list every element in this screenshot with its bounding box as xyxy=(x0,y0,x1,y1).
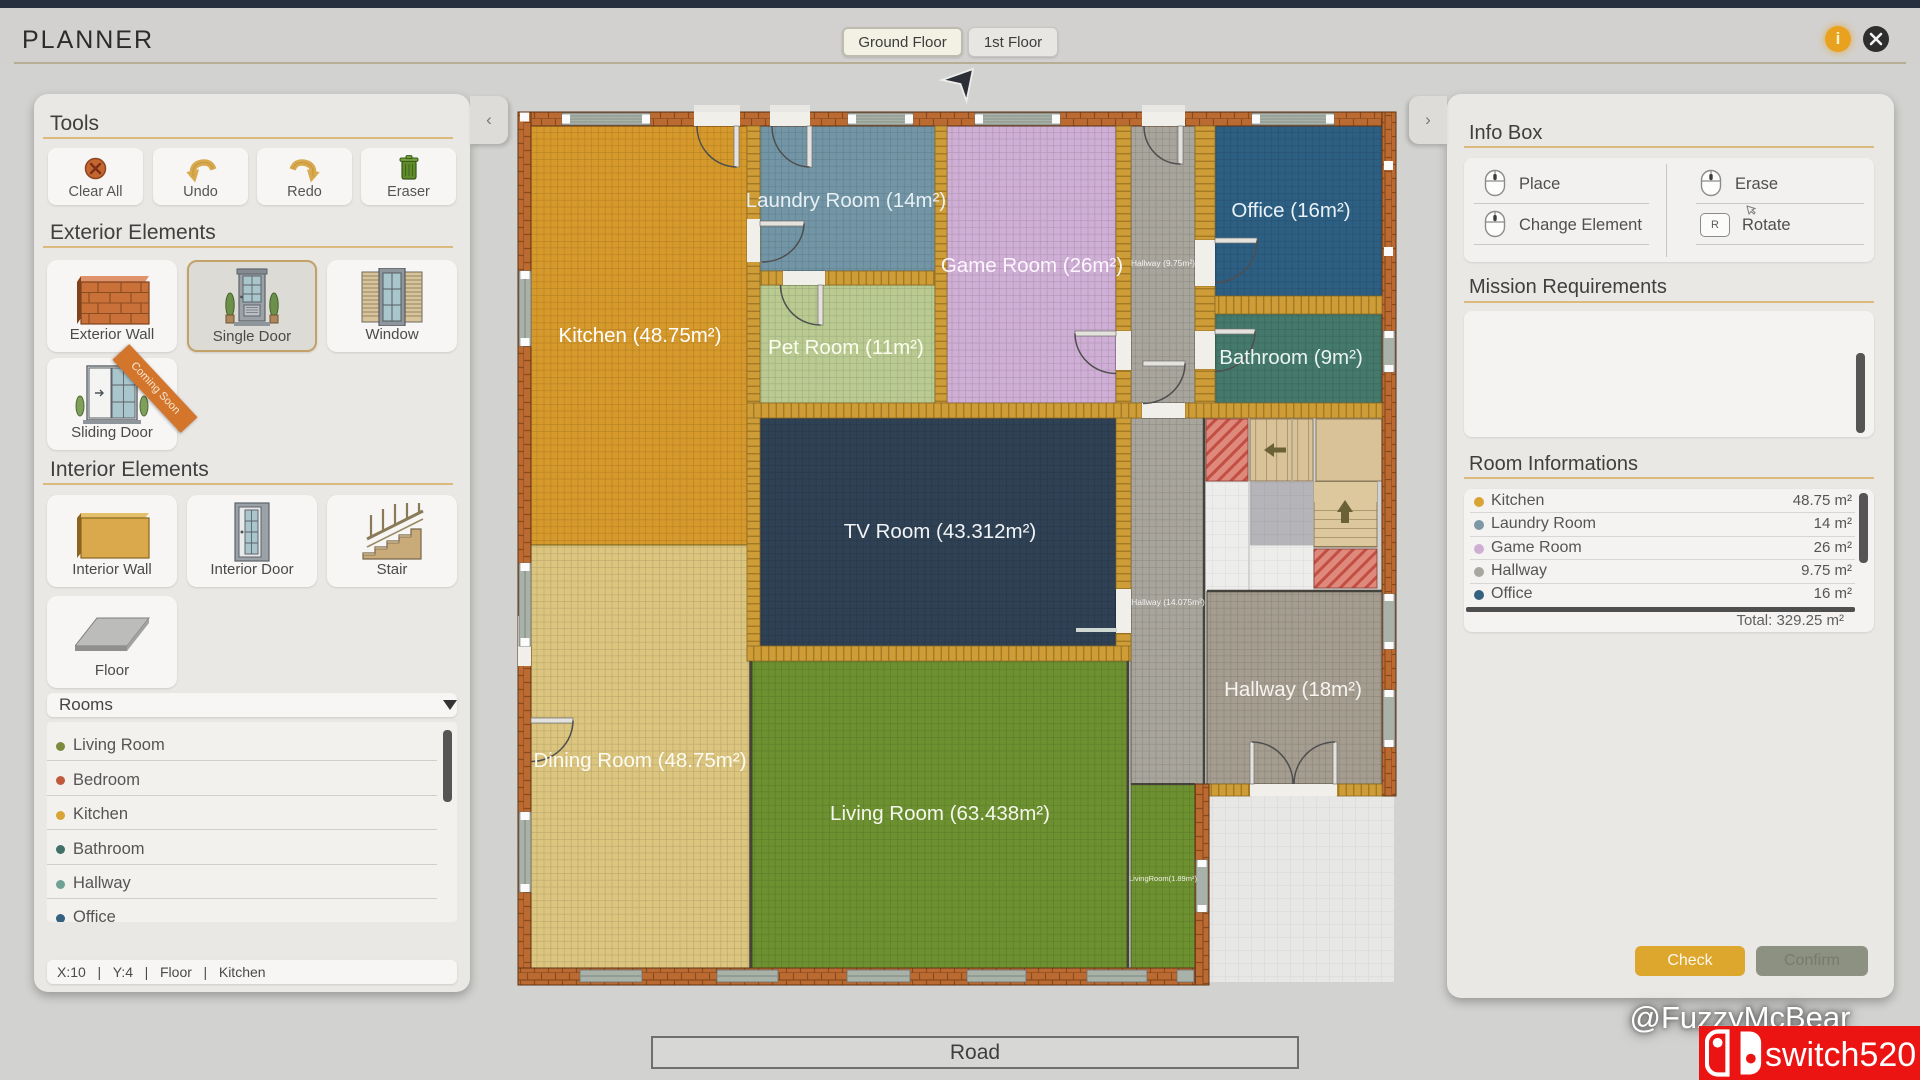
svg-text:Kitchen (48.75m²): Kitchen (48.75m²) xyxy=(559,324,722,347)
svg-text:Hallway (18m²): Hallway (18m²) xyxy=(1224,678,1362,701)
svg-text:Hallway (14.075m²): Hallway (14.075m²) xyxy=(1131,597,1205,607)
svg-text:Laundry Room (14m²): Laundry Room (14m²) xyxy=(746,189,947,212)
svg-text:Dining Room (48.75m²): Dining Room (48.75m²) xyxy=(533,749,746,772)
svg-text:Hallway (9.75m²): Hallway (9.75m²) xyxy=(1131,258,1195,268)
svg-text:Bathroom (9m²): Bathroom (9m²) xyxy=(1219,346,1363,369)
svg-text:LivingRoom(1.89m²): LivingRoom(1.89m²) xyxy=(1129,874,1197,883)
svg-text:TV Room (43.312m²): TV Room (43.312m²) xyxy=(844,520,1037,543)
svg-text:Pet Room (11m²): Pet Room (11m²) xyxy=(768,336,924,359)
svg-text:Living Room (63.438m²): Living Room (63.438m²) xyxy=(830,802,1050,825)
svg-text:Office (16m²): Office (16m²) xyxy=(1231,199,1350,222)
svg-text:Game Room (26m²): Game Room (26m²) xyxy=(941,254,1123,277)
